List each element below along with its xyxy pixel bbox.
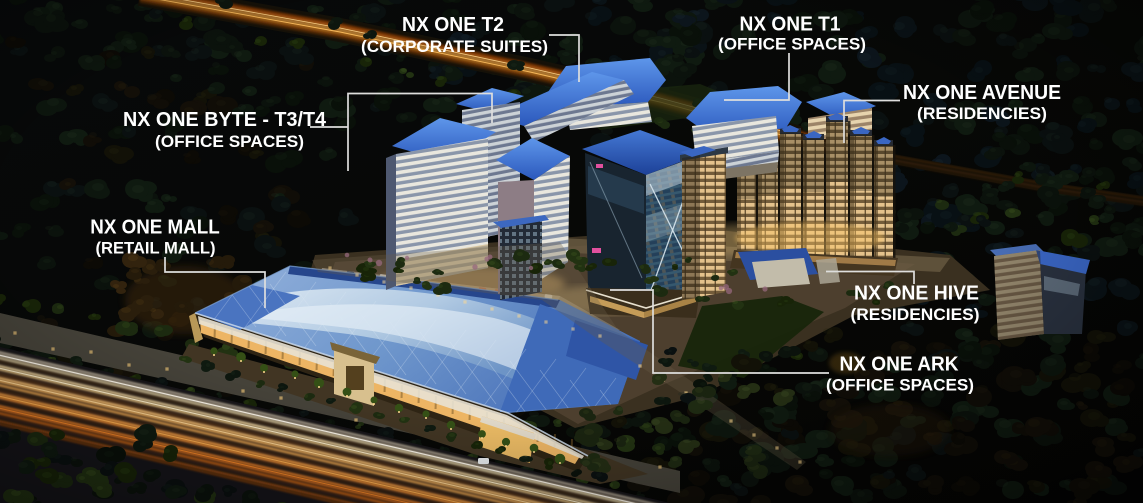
svg-text:NX ONE T2: NX ONE T2 [402, 14, 504, 36]
svg-text:(CORPORATE SUITES): (CORPORATE SUITES) [361, 38, 548, 56]
svg-text:NX ONE HIVE: NX ONE HIVE [854, 282, 979, 304]
svg-text:NX ONE BYTE - T3/T4: NX ONE BYTE - T3/T4 [123, 109, 327, 131]
svg-text:(RESIDENCIES): (RESIDENCIES) [851, 306, 980, 324]
svg-text:NX ONE AVENUE: NX ONE AVENUE [903, 82, 1061, 104]
svg-text:(OFFICE SPACES): (OFFICE SPACES) [718, 36, 866, 54]
svg-text:(OFFICE SPACES): (OFFICE SPACES) [155, 133, 304, 151]
svg-text:NX ONE ARK: NX ONE ARK [840, 354, 960, 376]
svg-text:NX ONE MALL: NX ONE MALL [90, 217, 220, 239]
svg-text:(OFFICE SPACES): (OFFICE SPACES) [826, 376, 974, 394]
svg-text:NX ONE T1: NX ONE T1 [740, 13, 841, 35]
svg-text:(RETAIL MALL): (RETAIL MALL) [96, 240, 216, 258]
svg-text:(RESIDENCIES): (RESIDENCIES) [917, 105, 1047, 123]
